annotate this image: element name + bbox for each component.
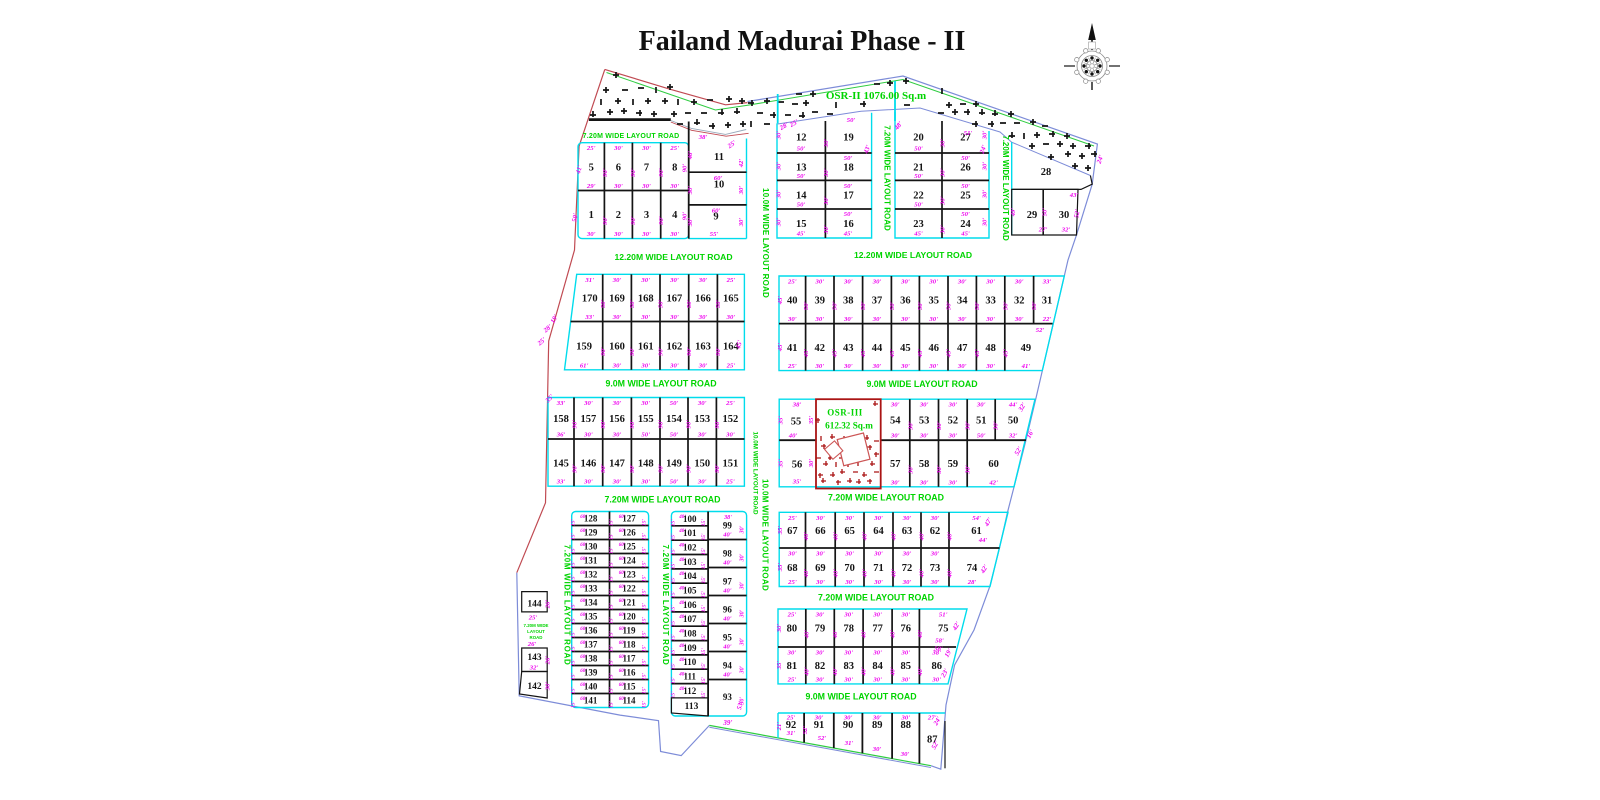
svg-text:151: 151 — [723, 458, 739, 469]
svg-text:42': 42' — [738, 159, 745, 169]
svg-text:30': 30' — [586, 231, 596, 238]
svg-text:61': 61' — [580, 362, 589, 369]
svg-text:60': 60' — [580, 599, 587, 604]
svg-text:40': 40' — [803, 667, 810, 677]
svg-text:30': 30' — [815, 612, 825, 619]
svg-text:60': 60' — [619, 613, 626, 618]
svg-text:32': 32' — [529, 665, 539, 672]
svg-text:22: 22 — [913, 190, 924, 201]
svg-text:15': 15' — [609, 687, 615, 695]
svg-text:170: 170 — [582, 294, 598, 305]
svg-text:165: 165 — [723, 294, 739, 305]
svg-text:31': 31' — [584, 277, 594, 284]
svg-text:38: 38 — [843, 296, 854, 307]
svg-text:23: 23 — [913, 219, 924, 230]
svg-text:35': 35' — [777, 526, 784, 536]
svg-text:66: 66 — [815, 526, 826, 537]
svg-text:60': 60' — [580, 669, 587, 674]
svg-text:45: 45 — [900, 343, 911, 354]
svg-text:30': 30' — [957, 363, 967, 370]
svg-text:40': 40' — [861, 630, 868, 640]
svg-text:15': 15' — [670, 648, 676, 656]
svg-text:30': 30' — [740, 553, 746, 562]
svg-text:30': 30' — [583, 479, 593, 486]
svg-text:51': 51' — [939, 612, 948, 619]
svg-text:70: 70 — [844, 563, 855, 574]
svg-text:50': 50' — [797, 202, 806, 209]
svg-text:15': 15' — [670, 547, 676, 555]
svg-text:15': 15' — [642, 687, 648, 695]
svg-text:52: 52 — [948, 415, 959, 426]
svg-text:30': 30' — [872, 612, 882, 619]
svg-text:90': 90' — [572, 464, 579, 473]
svg-text:15': 15' — [642, 617, 648, 625]
svg-text:15': 15' — [670, 619, 676, 627]
svg-text:143: 143 — [527, 653, 542, 663]
svg-text:153: 153 — [694, 414, 710, 425]
svg-text:13: 13 — [796, 162, 807, 173]
svg-text:68: 68 — [787, 563, 798, 574]
svg-text:51: 51 — [976, 415, 987, 426]
svg-text:50': 50' — [914, 146, 923, 153]
svg-text:15': 15' — [609, 589, 615, 597]
svg-text:93: 93 — [723, 692, 733, 702]
svg-text:30': 30' — [919, 402, 929, 409]
svg-text:10.0M WIDE LAYOUT ROAD: 10.0M WIDE LAYOUT ROAD — [761, 188, 770, 298]
svg-text:30': 30' — [901, 676, 911, 683]
svg-text:60': 60' — [619, 627, 626, 632]
svg-text:81: 81 — [787, 661, 798, 672]
svg-text:50': 50' — [844, 183, 853, 190]
svg-text:30': 30' — [872, 715, 882, 722]
svg-text:30': 30' — [612, 479, 622, 486]
svg-text:40': 40' — [832, 630, 839, 640]
svg-text:40': 40' — [947, 532, 954, 542]
svg-text:67: 67 — [787, 526, 798, 537]
svg-text:30': 30' — [890, 433, 900, 440]
svg-text:15': 15' — [609, 673, 615, 681]
svg-text:30': 30' — [776, 190, 783, 200]
svg-text:40': 40' — [678, 601, 686, 606]
svg-text:44': 44' — [1008, 402, 1018, 409]
svg-text:30': 30' — [726, 314, 736, 321]
svg-text:18: 18 — [843, 162, 854, 173]
svg-text:30': 30' — [872, 279, 882, 286]
svg-text:50': 50' — [844, 155, 853, 162]
svg-text:30': 30' — [902, 515, 912, 522]
svg-text:15': 15' — [642, 659, 648, 667]
svg-text:154: 154 — [666, 414, 683, 425]
svg-text:15': 15' — [642, 561, 648, 569]
svg-text:80: 80 — [787, 624, 798, 635]
svg-text:10.0M WIDE LAYOUT ROAD: 10.0M WIDE LAYOUT ROAD — [761, 479, 770, 591]
svg-text:90: 90 — [843, 720, 854, 731]
svg-text:90': 90' — [600, 420, 607, 429]
svg-text:41': 41' — [1021, 363, 1031, 370]
svg-text:40': 40' — [917, 667, 924, 677]
svg-text:45': 45' — [1002, 349, 1009, 359]
svg-text:90': 90' — [629, 464, 636, 473]
svg-text:30': 30' — [725, 432, 735, 439]
svg-text:15': 15' — [642, 631, 648, 639]
svg-text:15': 15' — [670, 576, 676, 584]
svg-text:157: 157 — [581, 414, 597, 425]
svg-text:60': 60' — [619, 543, 626, 548]
svg-text:35': 35' — [776, 661, 783, 671]
svg-text:46': 46' — [687, 151, 694, 161]
svg-text:30': 30' — [823, 139, 830, 149]
svg-text:50': 50' — [797, 173, 806, 180]
svg-text:60': 60' — [619, 697, 626, 702]
svg-text:30': 30' — [612, 277, 622, 284]
svg-text:90': 90' — [714, 420, 721, 429]
svg-text:149: 149 — [666, 458, 682, 469]
svg-text:25': 25' — [787, 279, 797, 286]
svg-text:60': 60' — [712, 208, 721, 215]
svg-text:40': 40' — [788, 433, 798, 440]
svg-text:40': 40' — [722, 644, 732, 651]
svg-text:15': 15' — [609, 701, 615, 709]
svg-text:30': 30' — [583, 432, 593, 439]
svg-text:30': 30' — [641, 183, 651, 190]
svg-text:15': 15' — [670, 519, 676, 527]
svg-text:50: 50 — [1008, 415, 1019, 426]
svg-text:50': 50' — [571, 213, 579, 223]
svg-text:30': 30' — [872, 746, 882, 753]
svg-text:OSR-II 1076.00 Sq.m: OSR-II 1076.00 Sq.m — [826, 90, 926, 102]
svg-text:15': 15' — [571, 617, 577, 625]
svg-text:79: 79 — [815, 624, 826, 635]
svg-text:15': 15' — [670, 590, 676, 598]
svg-text:15': 15' — [571, 701, 577, 709]
svg-text:36: 36 — [900, 296, 911, 307]
svg-text:45': 45' — [860, 349, 867, 359]
svg-text:30': 30' — [900, 363, 910, 370]
svg-text:38': 38' — [792, 402, 802, 409]
svg-text:40': 40' — [891, 532, 898, 542]
svg-text:40': 40' — [919, 532, 926, 542]
svg-text:40': 40' — [678, 658, 686, 663]
svg-text:35': 35' — [778, 459, 785, 469]
svg-text:161: 161 — [638, 341, 654, 352]
svg-text:15': 15' — [701, 605, 707, 613]
svg-text:30': 30' — [640, 362, 650, 369]
svg-text:15': 15' — [571, 533, 577, 541]
svg-text:30': 30' — [613, 145, 623, 152]
svg-text:15': 15' — [701, 662, 707, 670]
svg-text:30': 30' — [844, 579, 854, 586]
svg-text:50': 50' — [803, 301, 810, 310]
svg-text:50': 50' — [847, 117, 856, 124]
svg-text:40': 40' — [678, 673, 686, 678]
svg-text:60: 60 — [988, 459, 999, 470]
svg-text:63: 63 — [902, 526, 913, 537]
svg-text:84: 84 — [872, 661, 883, 672]
svg-text:90': 90' — [658, 168, 665, 177]
svg-text:40': 40' — [678, 630, 686, 635]
svg-text:40': 40' — [678, 572, 686, 577]
svg-text:15': 15' — [701, 676, 707, 684]
svg-text:50': 50' — [670, 479, 679, 486]
svg-text:15': 15' — [609, 617, 615, 625]
svg-text:30': 30' — [669, 183, 679, 190]
svg-text:15': 15' — [642, 547, 648, 555]
svg-text:30': 30' — [844, 515, 854, 522]
svg-text:30': 30' — [965, 465, 972, 475]
svg-text:10.0M WIDE LAYOUT ROAD: 10.0M WIDE LAYOUT ROAD — [752, 431, 759, 514]
svg-text:26': 26' — [545, 656, 552, 666]
svg-text:30': 30' — [900, 316, 910, 323]
svg-text:53: 53 — [919, 415, 930, 426]
svg-text:90': 90' — [714, 464, 721, 473]
svg-text:15': 15' — [571, 561, 577, 569]
svg-text:7.20M WIDE LAYOUT ROAD: 7.20M WIDE LAYOUT ROAD — [883, 125, 892, 231]
svg-text:90': 90' — [600, 464, 607, 473]
svg-text:30': 30' — [900, 279, 910, 286]
svg-text:32': 32' — [1008, 433, 1018, 440]
svg-text:7.20M WIDE LAYOUT ROAD: 7.20M WIDE LAYOUT ROAD — [828, 493, 944, 503]
svg-text:30': 30' — [957, 316, 967, 323]
svg-text:15': 15' — [701, 648, 707, 656]
svg-text:45': 45' — [913, 231, 923, 238]
svg-text:15': 15' — [571, 589, 577, 597]
svg-text:89: 89 — [872, 720, 883, 731]
svg-text:45': 45' — [777, 296, 784, 306]
svg-text:30': 30' — [907, 465, 914, 475]
svg-text:40': 40' — [678, 644, 686, 649]
svg-text:33': 33' — [556, 400, 566, 407]
svg-text:60': 60' — [619, 557, 626, 562]
svg-text:142: 142 — [527, 682, 542, 692]
svg-text:30': 30' — [843, 316, 853, 323]
svg-text:60': 60' — [580, 529, 587, 534]
svg-text:30': 30' — [815, 551, 825, 558]
svg-text:25': 25' — [786, 715, 796, 722]
svg-text:60': 60' — [580, 697, 587, 702]
svg-text:90': 90' — [600, 347, 607, 356]
svg-text:25': 25' — [787, 579, 797, 586]
svg-text:17: 17 — [843, 190, 854, 201]
svg-text:15': 15' — [609, 533, 615, 541]
svg-text:54: 54 — [890, 415, 901, 426]
svg-text:40': 40' — [678, 529, 686, 534]
svg-text:37: 37 — [872, 296, 883, 307]
svg-text:90': 90' — [681, 164, 688, 173]
svg-text:30': 30' — [740, 665, 746, 674]
svg-text:60': 60' — [619, 655, 626, 660]
svg-text:38': 38' — [723, 515, 732, 521]
svg-text:30': 30' — [872, 676, 882, 683]
svg-text:25': 25' — [725, 400, 735, 407]
svg-text:49': 49' — [1010, 208, 1017, 218]
svg-text:35': 35' — [777, 563, 784, 573]
svg-text:40': 40' — [891, 569, 898, 579]
svg-text:50': 50' — [641, 432, 650, 439]
svg-text:60': 60' — [619, 669, 626, 674]
svg-text:30': 30' — [669, 231, 679, 238]
svg-text:30': 30' — [641, 145, 651, 152]
svg-text:40': 40' — [722, 672, 732, 679]
svg-text:50': 50' — [1031, 301, 1038, 310]
svg-text:60': 60' — [580, 571, 587, 576]
svg-text:30': 30' — [815, 316, 825, 323]
svg-text:15': 15' — [701, 519, 707, 527]
svg-text:83: 83 — [843, 661, 854, 672]
svg-text:2: 2 — [616, 210, 621, 221]
svg-text:19: 19 — [843, 133, 854, 144]
svg-text:30': 30' — [697, 479, 707, 486]
svg-text:30': 30' — [787, 650, 797, 657]
svg-text:36': 36' — [556, 432, 566, 439]
svg-text:90': 90' — [686, 347, 693, 356]
svg-text:30': 30' — [940, 196, 947, 206]
svg-text:150: 150 — [694, 458, 710, 469]
svg-text:30': 30' — [872, 650, 882, 657]
svg-text:30': 30' — [873, 579, 883, 586]
svg-text:90': 90' — [658, 464, 665, 473]
svg-text:169: 169 — [609, 294, 625, 305]
svg-text:30': 30' — [687, 218, 694, 228]
svg-text:30': 30' — [843, 715, 853, 722]
svg-text:50': 50' — [1042, 208, 1049, 217]
svg-text:45': 45' — [946, 349, 953, 359]
svg-text:90': 90' — [630, 168, 637, 177]
svg-text:15': 15' — [571, 575, 577, 583]
svg-text:77: 77 — [872, 624, 883, 635]
svg-text:163: 163 — [695, 341, 711, 352]
svg-text:90': 90' — [658, 420, 665, 429]
svg-text:25': 25' — [787, 612, 797, 619]
svg-text:30': 30' — [940, 225, 947, 235]
svg-text:7: 7 — [644, 162, 649, 173]
svg-text:15': 15' — [609, 547, 615, 555]
svg-text:47: 47 — [957, 343, 968, 354]
svg-text:30': 30' — [843, 676, 853, 683]
svg-text:33': 33' — [584, 314, 594, 321]
svg-text:50': 50' — [914, 173, 923, 180]
svg-text:60': 60' — [580, 557, 587, 562]
svg-text:30': 30' — [815, 579, 825, 586]
svg-text:30': 30' — [583, 400, 593, 407]
svg-text:30': 30' — [640, 277, 650, 284]
svg-text:15': 15' — [701, 590, 707, 598]
svg-text:40': 40' — [678, 687, 686, 692]
svg-text:30': 30' — [957, 279, 967, 286]
svg-text:45': 45' — [917, 349, 924, 359]
svg-text:42: 42 — [815, 343, 826, 354]
svg-text:25': 25' — [669, 145, 679, 152]
svg-text:58: 58 — [919, 459, 930, 470]
svg-text:90': 90' — [629, 347, 636, 356]
svg-text:15': 15' — [609, 603, 615, 611]
svg-text:60': 60' — [580, 515, 587, 520]
svg-text:46: 46 — [928, 343, 939, 354]
svg-text:25': 25' — [787, 676, 797, 683]
svg-text:44': 44' — [978, 537, 988, 544]
svg-text:48: 48 — [985, 343, 996, 354]
svg-text:7.20M WIDE: 7.20M WIDE — [524, 623, 549, 628]
svg-text:30': 30' — [902, 551, 912, 558]
svg-text:40': 40' — [833, 532, 840, 542]
svg-text:30': 30' — [808, 459, 815, 469]
svg-text:30': 30' — [687, 186, 694, 196]
svg-text:45': 45' — [832, 349, 839, 359]
svg-text:30': 30' — [776, 131, 783, 141]
svg-text:74: 74 — [967, 563, 978, 574]
svg-text:60': 60' — [714, 175, 723, 182]
svg-text:33': 33' — [1042, 279, 1052, 286]
svg-text:40': 40' — [833, 569, 840, 579]
svg-text:40': 40' — [722, 532, 732, 539]
svg-text:35': 35' — [792, 479, 802, 486]
svg-text:30': 30' — [815, 279, 825, 286]
svg-text:15': 15' — [701, 562, 707, 570]
svg-text:40: 40 — [787, 296, 798, 307]
svg-text:50': 50' — [797, 146, 806, 153]
svg-text:15': 15' — [670, 562, 676, 570]
svg-text:15': 15' — [571, 547, 577, 555]
svg-text:88: 88 — [901, 720, 912, 731]
svg-text:15': 15' — [701, 619, 707, 627]
svg-text:45': 45' — [803, 349, 810, 359]
svg-text:45': 45' — [843, 231, 853, 238]
svg-text:40': 40' — [890, 630, 897, 640]
svg-text:40': 40' — [862, 532, 869, 542]
svg-text:30': 30' — [930, 515, 940, 522]
svg-text:60': 60' — [580, 613, 587, 618]
svg-text:60': 60' — [580, 585, 587, 590]
svg-text:30': 30' — [823, 196, 830, 206]
svg-text:60': 60' — [580, 641, 587, 646]
svg-text:30': 30' — [612, 400, 622, 407]
svg-text:60': 60' — [619, 683, 626, 688]
svg-text:15': 15' — [571, 659, 577, 667]
svg-text:50': 50' — [715, 299, 722, 308]
svg-text:43': 43' — [1069, 192, 1079, 199]
svg-text:96: 96 — [723, 605, 733, 615]
svg-text:50': 50' — [917, 301, 924, 310]
svg-text:30': 30' — [940, 139, 947, 149]
svg-text:15': 15' — [642, 589, 648, 597]
svg-text:155: 155 — [638, 414, 654, 425]
svg-text:30': 30' — [815, 515, 825, 522]
svg-text:50': 50' — [961, 211, 970, 218]
svg-text:65: 65 — [844, 526, 855, 537]
svg-text:40': 40' — [678, 558, 686, 563]
svg-text:30': 30' — [1014, 316, 1024, 323]
svg-text:30': 30' — [612, 362, 622, 369]
svg-text:15': 15' — [670, 676, 676, 684]
svg-text:30': 30' — [698, 277, 708, 284]
svg-text:113: 113 — [685, 702, 699, 712]
svg-text:60': 60' — [580, 543, 587, 548]
svg-text:15': 15' — [670, 605, 676, 613]
svg-text:40': 40' — [919, 569, 926, 579]
svg-text:55': 55' — [710, 231, 719, 238]
svg-text:40': 40' — [722, 560, 732, 567]
svg-text:60': 60' — [580, 627, 587, 632]
svg-text:3: 3 — [644, 210, 649, 221]
svg-text:30': 30' — [787, 551, 797, 558]
svg-text:33': 33' — [556, 479, 566, 486]
svg-text:166: 166 — [695, 294, 711, 305]
svg-text:7.20M WIDE LAYOUT ROAD: 7.20M WIDE LAYOUT ROAD — [1001, 135, 1010, 241]
svg-text:30': 30' — [738, 218, 745, 228]
svg-text:30': 30' — [948, 402, 958, 409]
svg-text:82: 82 — [815, 661, 826, 672]
svg-text:44: 44 — [872, 343, 883, 354]
svg-text:54': 54' — [972, 515, 981, 522]
